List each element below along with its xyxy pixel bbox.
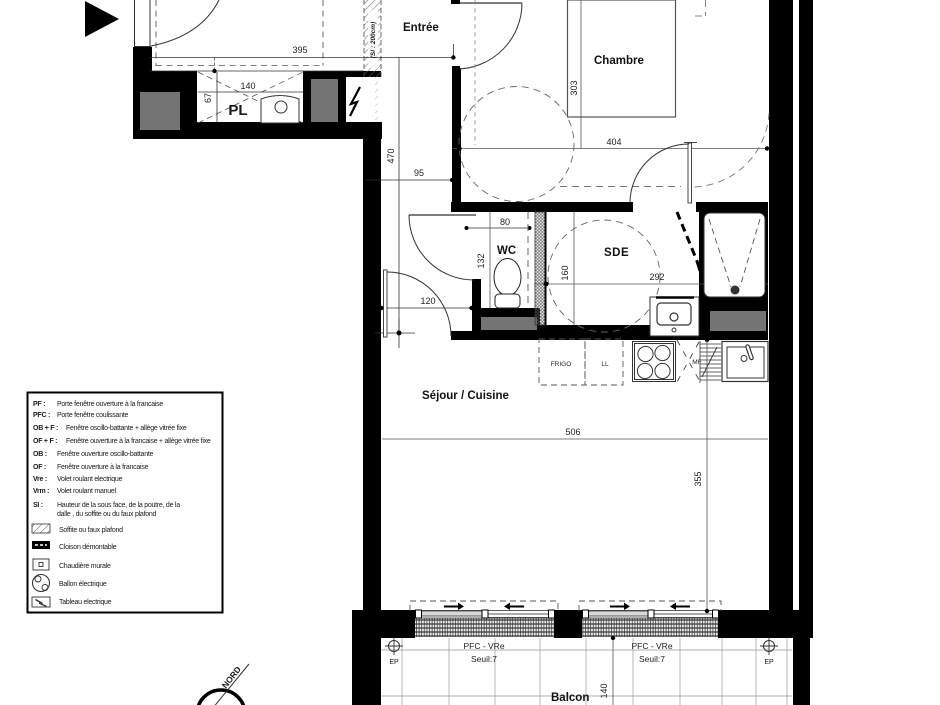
svg-text:506: 506 xyxy=(565,427,580,437)
svg-text:Fenêtre ouverture à la francai: Fenêtre ouverture à la francaise + allèg… xyxy=(66,438,211,445)
svg-text:PL: PL xyxy=(228,102,247,119)
svg-text:(SI : 200cm): (SI : 200cm) xyxy=(370,22,377,59)
svg-text:dalle , du soffite ou du faux: dalle , du soffite ou du faux plafond xyxy=(57,511,157,518)
svg-text:Vrm :: Vrm : xyxy=(33,488,49,495)
svg-text:OB :: OB : xyxy=(33,451,47,458)
svg-text:Volet roulant manuel: Volet roulant manuel xyxy=(57,488,117,495)
svg-text:303: 303 xyxy=(569,80,579,95)
svg-text:292: 292 xyxy=(649,272,664,282)
svg-text:Hauteur de la sous face, de la: Hauteur de la sous face, de la poutre, d… xyxy=(57,502,180,509)
svg-text:Seuil:7: Seuil:7 xyxy=(471,654,497,664)
svg-text:95: 95 xyxy=(414,168,424,178)
svg-text:Fenêtre ouverture à la francai: Fenêtre ouverture à la francaise xyxy=(57,464,149,471)
svg-text:SDE: SDE xyxy=(604,247,629,259)
svg-text:PF :: PF : xyxy=(33,401,45,408)
svg-text:PFC - VRe: PFC - VRe xyxy=(463,641,504,651)
svg-text:PFC - VRe: PFC - VRe xyxy=(631,641,672,651)
svg-text:Fenêtre oscillo-battante + all: Fenêtre oscillo-battante + allège vitrée… xyxy=(66,425,187,432)
svg-text:355: 355 xyxy=(693,471,703,486)
svg-text:OB + F :: OB + F : xyxy=(33,425,58,432)
svg-text:Balcon: Balcon xyxy=(551,692,589,704)
svg-text:Vre :: Vre : xyxy=(33,476,47,483)
svg-text:EP: EP xyxy=(764,659,774,666)
svg-text:80: 80 xyxy=(500,217,510,227)
svg-text:Seuil:7: Seuil:7 xyxy=(639,654,665,664)
svg-text:Chambre: Chambre xyxy=(594,55,644,67)
svg-text:WC: WC xyxy=(497,245,516,257)
svg-text:Entrée: Entrée xyxy=(403,22,439,34)
svg-text:Chaudière murale: Chaudière murale xyxy=(59,563,111,570)
svg-text:160: 160 xyxy=(560,265,570,280)
svg-text:Cloison démontable: Cloison démontable xyxy=(59,544,117,551)
svg-text:120: 120 xyxy=(420,296,435,306)
svg-text:PFC :: PFC : xyxy=(33,412,50,419)
svg-text:OF :: OF : xyxy=(33,464,46,471)
svg-text:140: 140 xyxy=(599,683,609,698)
svg-text:132: 132 xyxy=(476,253,486,268)
svg-text:Fenêtre ouverture oscillo-batt: Fenêtre ouverture oscillo-battante xyxy=(57,451,154,458)
svg-text:OF + F :: OF + F : xyxy=(33,438,57,445)
svg-text:FRIGO: FRIGO xyxy=(551,361,572,368)
svg-text:67: 67 xyxy=(203,93,213,103)
svg-text:Soffite ou faux plafond: Soffite ou faux plafond xyxy=(59,527,123,534)
svg-text:Porte fenêtre ouverture à la f: Porte fenêtre ouverture à la francaise xyxy=(57,401,163,408)
svg-text:140: 140 xyxy=(240,81,255,91)
svg-text:404: 404 xyxy=(606,137,621,147)
svg-text:395: 395 xyxy=(292,45,307,55)
svg-text:SI :: SI : xyxy=(33,502,43,509)
svg-text:LL: LL xyxy=(601,361,609,368)
svg-text:470: 470 xyxy=(386,148,396,163)
svg-text:Ballon électrique: Ballon électrique xyxy=(59,581,107,588)
svg-text:EP: EP xyxy=(389,659,399,666)
svg-text:Volet roulant electrique: Volet roulant electrique xyxy=(57,476,123,483)
svg-text:Séjour / Cuisine: Séjour / Cuisine xyxy=(422,390,509,402)
svg-text:Tableau electrique: Tableau electrique xyxy=(59,599,112,606)
svg-text:Porte fenêtre coulissante: Porte fenêtre coulissante xyxy=(57,412,129,419)
